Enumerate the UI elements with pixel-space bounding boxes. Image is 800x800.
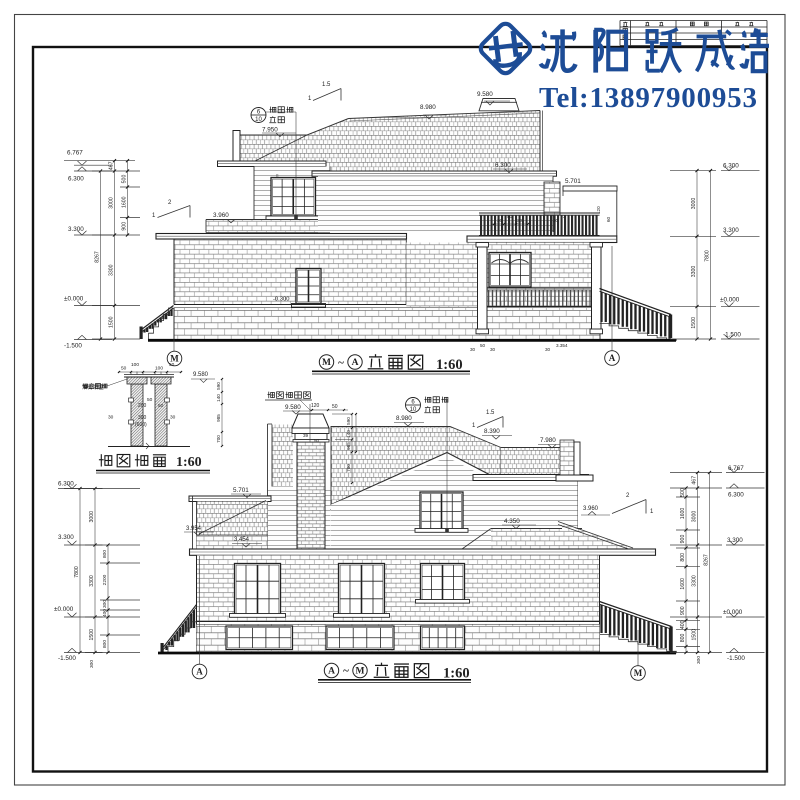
svg-text:6.767: 6.767 bbox=[728, 465, 744, 472]
svg-text:Tel:13897900953: Tel:13897900953 bbox=[539, 82, 758, 114]
svg-text:10: 10 bbox=[255, 117, 262, 123]
svg-text:30: 30 bbox=[553, 218, 559, 223]
svg-text:A: A bbox=[609, 353, 616, 363]
svg-text:300: 300 bbox=[102, 600, 108, 608]
svg-text:30: 30 bbox=[108, 415, 114, 421]
svg-text:3000: 3000 bbox=[692, 511, 698, 523]
svg-text:6.300: 6.300 bbox=[68, 176, 84, 183]
svg-text:M: M bbox=[356, 667, 365, 677]
svg-text:3.954: 3.954 bbox=[186, 526, 202, 532]
svg-text:590: 590 bbox=[216, 382, 221, 390]
svg-text:1500: 1500 bbox=[109, 316, 115, 328]
svg-text:900: 900 bbox=[680, 606, 686, 615]
svg-text:500: 500 bbox=[680, 488, 686, 497]
svg-text:8.390: 8.390 bbox=[484, 428, 500, 435]
svg-text:8.980: 8.980 bbox=[420, 104, 436, 111]
svg-text:1.5: 1.5 bbox=[322, 82, 331, 88]
svg-text:467: 467 bbox=[692, 476, 698, 485]
svg-text:985: 985 bbox=[346, 442, 351, 450]
svg-text:-1.500: -1.500 bbox=[723, 332, 741, 339]
svg-text:6.300: 6.300 bbox=[723, 163, 739, 170]
svg-text:4.350: 4.350 bbox=[504, 518, 520, 525]
svg-text:6.300: 6.300 bbox=[495, 162, 511, 169]
svg-text:5.701: 5.701 bbox=[233, 487, 249, 494]
svg-text:2200: 2200 bbox=[102, 574, 108, 585]
svg-text:-1.500: -1.500 bbox=[727, 655, 745, 662]
svg-text:120: 120 bbox=[596, 206, 601, 214]
svg-text:800: 800 bbox=[102, 550, 108, 558]
svg-text:7.950: 7.950 bbox=[262, 127, 278, 134]
svg-text:6.300: 6.300 bbox=[728, 492, 744, 499]
svg-text:3.300: 3.300 bbox=[727, 537, 743, 544]
svg-text:800: 800 bbox=[680, 553, 686, 562]
svg-text:1600: 1600 bbox=[680, 508, 686, 520]
svg-text:A: A bbox=[352, 358, 359, 368]
svg-text:200: 200 bbox=[138, 403, 147, 409]
svg-text:50: 50 bbox=[507, 214, 513, 219]
svg-text:~: ~ bbox=[343, 665, 349, 677]
svg-text:300: 300 bbox=[89, 660, 95, 668]
svg-text:±0.000: ±0.000 bbox=[720, 297, 740, 304]
svg-text:140: 140 bbox=[216, 394, 221, 402]
svg-text:700: 700 bbox=[216, 435, 221, 443]
svg-text:7800: 7800 bbox=[705, 250, 711, 262]
svg-text:300: 300 bbox=[696, 656, 702, 664]
svg-text:3000: 3000 bbox=[89, 511, 95, 523]
svg-text:500: 500 bbox=[122, 175, 128, 184]
svg-text:300: 300 bbox=[138, 415, 147, 421]
svg-text:39: 39 bbox=[303, 433, 309, 438]
svg-text:3.960: 3.960 bbox=[213, 212, 229, 219]
svg-text:9.580: 9.580 bbox=[477, 91, 493, 98]
svg-text:1600: 1600 bbox=[122, 196, 128, 208]
svg-text:7800: 7800 bbox=[74, 566, 80, 578]
svg-text:400: 400 bbox=[680, 620, 686, 629]
svg-text:(600): (600) bbox=[135, 422, 147, 428]
svg-text:30: 30 bbox=[545, 347, 551, 352]
svg-text:±0.000: ±0.000 bbox=[64, 296, 84, 303]
svg-text:3.960: 3.960 bbox=[583, 506, 599, 512]
svg-text:3: 3 bbox=[563, 214, 566, 219]
svg-text:467: 467 bbox=[109, 161, 115, 170]
svg-text:1500: 1500 bbox=[692, 629, 698, 641]
svg-text:3.300: 3.300 bbox=[58, 534, 74, 541]
svg-text:M: M bbox=[322, 358, 331, 368]
svg-text:30: 30 bbox=[497, 218, 503, 223]
svg-text:30: 30 bbox=[470, 347, 476, 352]
svg-text:5.701: 5.701 bbox=[565, 178, 581, 185]
svg-text:30: 30 bbox=[517, 218, 523, 223]
svg-text:7.980: 7.980 bbox=[540, 437, 556, 444]
svg-text:A: A bbox=[328, 667, 335, 677]
svg-text:6.300: 6.300 bbox=[58, 481, 74, 488]
svg-text:700: 700 bbox=[346, 464, 351, 472]
svg-text:1500: 1500 bbox=[691, 317, 697, 329]
svg-text:50: 50 bbox=[314, 438, 320, 443]
svg-text:±0.000: ±0.000 bbox=[54, 606, 74, 613]
svg-text:3000: 3000 bbox=[109, 197, 115, 209]
svg-text:3300: 3300 bbox=[691, 266, 697, 278]
svg-text:3000: 3000 bbox=[691, 198, 697, 210]
svg-text:985: 985 bbox=[216, 414, 221, 422]
svg-text:900: 900 bbox=[122, 222, 128, 231]
svg-text:100: 100 bbox=[131, 362, 139, 368]
svg-text:M: M bbox=[634, 668, 643, 678]
svg-text:8267: 8267 bbox=[704, 554, 710, 566]
svg-text:800: 800 bbox=[680, 633, 686, 642]
svg-text:50: 50 bbox=[147, 397, 153, 403]
svg-text:-0.300: -0.300 bbox=[273, 297, 289, 303]
svg-text:3.454: 3.454 bbox=[234, 537, 250, 543]
svg-text:~: ~ bbox=[338, 357, 344, 369]
svg-text:400: 400 bbox=[102, 609, 108, 617]
svg-text:3.354: 3.354 bbox=[556, 343, 568, 348]
svg-text:3300: 3300 bbox=[692, 575, 698, 587]
svg-text:6.767: 6.767 bbox=[67, 150, 83, 157]
svg-text:50: 50 bbox=[480, 343, 486, 348]
svg-text:-1.500: -1.500 bbox=[58, 655, 76, 662]
svg-text:30: 30 bbox=[490, 347, 496, 352]
svg-text:A: A bbox=[196, 667, 203, 677]
svg-text:3300: 3300 bbox=[109, 264, 115, 276]
svg-text:1600: 1600 bbox=[680, 578, 686, 590]
svg-text:120: 120 bbox=[311, 403, 320, 409]
svg-text:50: 50 bbox=[121, 366, 127, 372]
svg-text:1500: 1500 bbox=[89, 629, 95, 641]
svg-text:800: 800 bbox=[102, 640, 108, 648]
svg-text:±0.000: ±0.000 bbox=[723, 609, 743, 616]
svg-text:50: 50 bbox=[158, 403, 164, 409]
svg-text:9.580: 9.580 bbox=[193, 372, 209, 378]
svg-text:50: 50 bbox=[169, 362, 175, 368]
svg-text:140: 140 bbox=[346, 430, 351, 438]
svg-text:8.980: 8.980 bbox=[396, 415, 412, 422]
svg-text:M: M bbox=[170, 354, 179, 364]
svg-text:10: 10 bbox=[410, 407, 417, 413]
svg-text:1.5: 1.5 bbox=[486, 410, 495, 416]
svg-text:9.580: 9.580 bbox=[285, 404, 301, 411]
svg-text:3.300: 3.300 bbox=[723, 227, 739, 234]
svg-text:590: 590 bbox=[346, 417, 351, 425]
svg-text:3.300: 3.300 bbox=[68, 226, 84, 233]
svg-text:50: 50 bbox=[332, 404, 338, 410]
svg-text:30: 30 bbox=[170, 415, 176, 421]
svg-text:900: 900 bbox=[680, 535, 686, 544]
svg-text:1:60: 1:60 bbox=[176, 455, 202, 470]
svg-text:60: 60 bbox=[606, 216, 611, 222]
svg-text:8267: 8267 bbox=[95, 251, 101, 263]
svg-text:100: 100 bbox=[155, 366, 163, 372]
svg-text:3300: 3300 bbox=[89, 575, 95, 587]
svg-text:-1.500: -1.500 bbox=[64, 343, 82, 350]
